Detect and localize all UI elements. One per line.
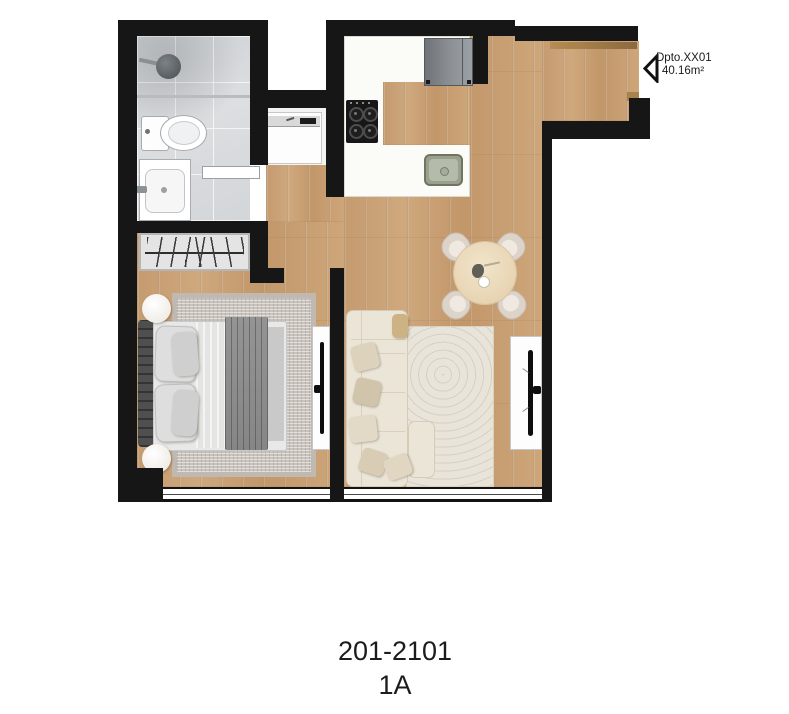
- washing-machine: [266, 112, 322, 164]
- sink-drain: [440, 167, 449, 176]
- stove-knobs: [350, 102, 374, 104]
- kitchen-sink: [424, 154, 463, 186]
- sofa-pillow-3: [348, 414, 379, 443]
- plan-variant: 1A: [295, 670, 495, 701]
- bed-accent-pillow-top: [170, 331, 199, 377]
- dining-table: [454, 242, 516, 304]
- kitchen-floor-wedge: [383, 82, 470, 145]
- bedroom-tv-stand: [314, 385, 321, 393]
- wall-top-middle: [326, 20, 515, 36]
- bathroom-door: [202, 166, 260, 179]
- refrigerator: [424, 38, 473, 86]
- stove-cooktop: [346, 100, 378, 143]
- bed-accent-pillow-bottom: [170, 389, 199, 437]
- shower-screen: [137, 95, 250, 98]
- washer-display: [300, 118, 316, 124]
- nightstand-top: [142, 294, 171, 323]
- living-tv-stand: [533, 386, 541, 394]
- window-band: [163, 487, 542, 502]
- window-glazing-line: [163, 494, 542, 495]
- wall-kitchen-left: [326, 20, 344, 197]
- wall-bathroom-top: [118, 20, 268, 36]
- living-tv: [528, 350, 533, 436]
- living-tv-console: [510, 336, 542, 450]
- refrigerator-door-split: [462, 39, 463, 85]
- shower-head: [156, 54, 181, 79]
- entry-door: [550, 42, 637, 49]
- bed-blanket: [225, 317, 268, 450]
- bedroom-tv-console: [312, 326, 330, 450]
- toilet-bowl-inner: [168, 121, 200, 145]
- bed-sheet: [196, 322, 226, 448]
- refrigerator-foot-right: [467, 80, 471, 84]
- toilet-flush-button: [145, 129, 150, 134]
- sofa-pillow-2: [352, 377, 383, 408]
- wall-left: [118, 20, 137, 502]
- wall-bedroom-door-stub: [250, 268, 284, 283]
- closet-hangers-right: [185, 237, 244, 267]
- wall-bedroom-living-divider: [330, 268, 344, 502]
- unit-area: 40.16m²: [656, 65, 746, 78]
- unit-tag: Dpto.XX01 40.16m²: [656, 52, 746, 78]
- wall-bathroom-bottom: [118, 221, 268, 233]
- table-cup: [478, 276, 490, 288]
- wall-corner-block: [118, 468, 163, 502]
- table-twig-decor: [484, 261, 500, 266]
- refrigerator-foot-left: [426, 80, 430, 84]
- sofa-lumbar-pillow: [392, 314, 408, 338]
- basin-drain: [161, 187, 167, 193]
- entry-corridor-floor: [542, 41, 639, 121]
- unit-label: Dpto.XX01: [656, 52, 746, 65]
- bed-headboard: [138, 320, 154, 447]
- wall-right: [542, 121, 552, 502]
- bed-foot-runner: [268, 327, 284, 441]
- floor-plan-canvas: Dpto.XX01 40.16m² 201-2101 1A: [0, 0, 789, 714]
- wall-fridge-stub: [473, 36, 488, 84]
- wall-top-right: [515, 26, 638, 41]
- wall-corridor-bottom: [550, 121, 650, 139]
- vanity-faucet: [136, 186, 147, 193]
- plan-number: 201-2101: [295, 636, 495, 667]
- closet: [139, 233, 250, 271]
